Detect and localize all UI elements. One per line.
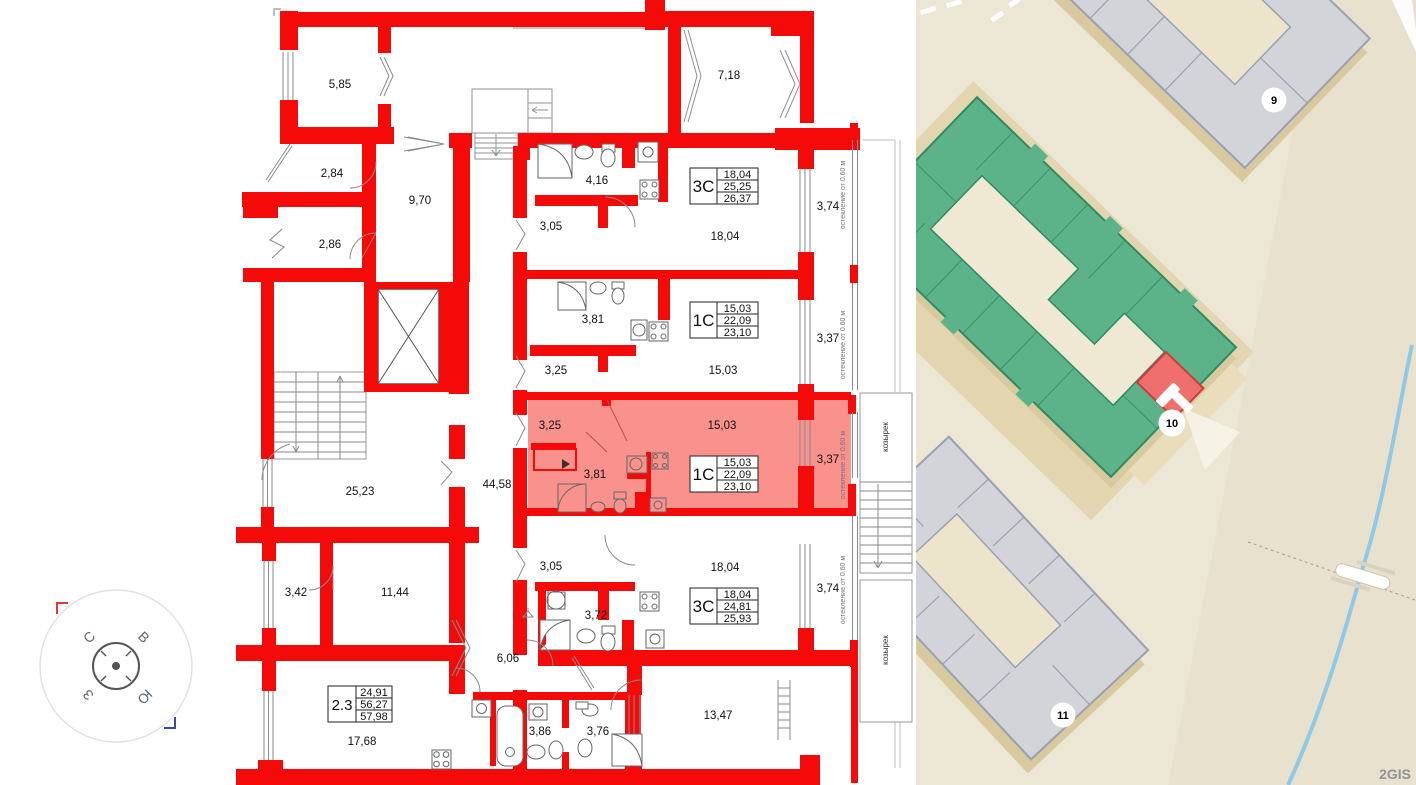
svg-text:3,37: 3,37 bbox=[817, 333, 839, 345]
svg-text:остекление от 0.60 м: остекление от 0.60 м bbox=[840, 556, 847, 625]
svg-text:3,81: 3,81 bbox=[582, 314, 604, 326]
svg-text:3,81: 3,81 bbox=[584, 469, 606, 481]
svg-text:3,72: 3,72 bbox=[585, 610, 607, 622]
svg-text:3,74: 3,74 bbox=[817, 583, 840, 595]
svg-text:3,05: 3,05 bbox=[540, 561, 562, 573]
svg-text:18,04: 18,04 bbox=[724, 589, 752, 601]
svg-text:5,85: 5,85 bbox=[329, 79, 351, 91]
svg-text:15,03: 15,03 bbox=[709, 365, 738, 377]
svg-text:44,58: 44,58 bbox=[483, 479, 512, 491]
svg-text:10: 10 bbox=[1166, 418, 1178, 430]
svg-text:25,93: 25,93 bbox=[724, 613, 752, 625]
svg-text:3,25: 3,25 bbox=[545, 365, 567, 377]
svg-text:9,70: 9,70 bbox=[409, 195, 431, 207]
svg-text:2,84: 2,84 bbox=[321, 168, 344, 180]
svg-text:2,86: 2,86 bbox=[319, 239, 341, 251]
svg-text:26,37: 26,37 bbox=[724, 193, 752, 205]
svg-text:3С: 3С bbox=[693, 177, 715, 196]
svg-text:2GIS: 2GIS bbox=[1379, 766, 1411, 782]
svg-text:остекление от 0.60 м: остекление от 0.60 м bbox=[840, 431, 847, 500]
svg-text:13,47: 13,47 bbox=[704, 710, 733, 722]
svg-text:18,04: 18,04 bbox=[724, 169, 752, 181]
svg-text:9: 9 bbox=[1271, 95, 1277, 107]
svg-text:3,25: 3,25 bbox=[539, 420, 561, 432]
svg-text:6,06: 6,06 bbox=[497, 653, 519, 665]
svg-text:18,04: 18,04 bbox=[711, 562, 740, 574]
svg-text:3,86: 3,86 bbox=[529, 726, 551, 738]
svg-text:4,16: 4,16 bbox=[586, 175, 608, 187]
svg-text:24,81: 24,81 bbox=[724, 601, 752, 613]
svg-text:15,03: 15,03 bbox=[708, 420, 737, 432]
svg-text:57,98: 57,98 bbox=[360, 711, 388, 723]
svg-text:18,04: 18,04 bbox=[711, 231, 740, 243]
svg-text:остекление от 0.60 м: остекление от 0.60 м bbox=[840, 161, 847, 230]
svg-text:2.3: 2.3 bbox=[332, 697, 353, 714]
svg-text:1С: 1С bbox=[693, 465, 715, 484]
svg-text:22,09: 22,09 bbox=[724, 315, 752, 327]
svg-text:козырек: козырек bbox=[881, 422, 890, 452]
svg-text:остекление от 0.60 м: остекление от 0.60 м bbox=[840, 311, 847, 380]
svg-text:15,03: 15,03 bbox=[724, 303, 752, 315]
svg-text:25,25: 25,25 bbox=[724, 181, 752, 193]
svg-text:3,74: 3,74 bbox=[817, 201, 840, 213]
svg-text:3,05: 3,05 bbox=[540, 221, 562, 233]
svg-text:25,23: 25,23 bbox=[346, 486, 375, 498]
svg-text:3,76: 3,76 bbox=[587, 726, 609, 738]
svg-text:11: 11 bbox=[1057, 710, 1069, 722]
svg-text:11,44: 11,44 bbox=[381, 587, 410, 599]
svg-text:22,09: 22,09 bbox=[724, 469, 752, 481]
svg-text:3,42: 3,42 bbox=[285, 587, 307, 599]
svg-text:3С: 3С bbox=[693, 597, 715, 616]
svg-text:7,18: 7,18 bbox=[718, 70, 740, 82]
svg-text:23,10: 23,10 bbox=[724, 481, 752, 493]
svg-text:1С: 1С bbox=[693, 311, 715, 330]
svg-text:17,68: 17,68 bbox=[348, 736, 377, 748]
svg-text:56,27: 56,27 bbox=[360, 699, 388, 711]
svg-text:15,03: 15,03 bbox=[724, 457, 752, 469]
svg-text:3,37: 3,37 bbox=[817, 454, 839, 466]
svg-text:24,91: 24,91 bbox=[360, 687, 388, 699]
svg-text:23,10: 23,10 bbox=[724, 327, 752, 339]
svg-text:козырек: козырек bbox=[881, 635, 890, 665]
